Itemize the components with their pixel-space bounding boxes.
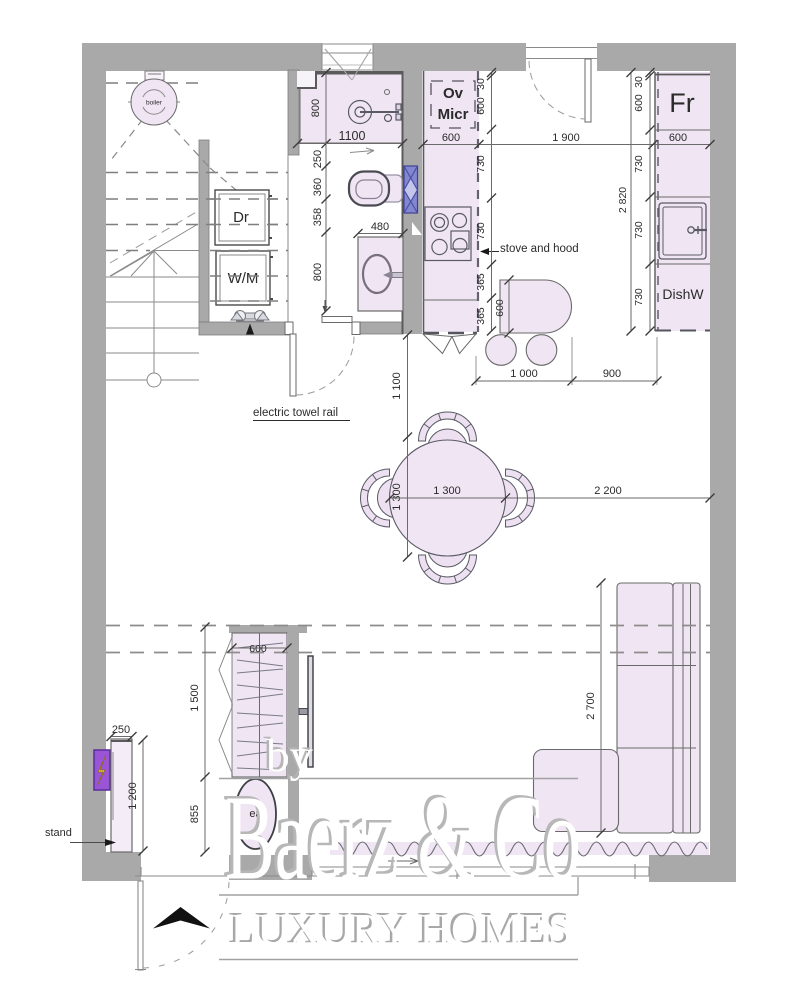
svg-text:365: 365 — [475, 273, 487, 291]
svg-text:DishW: DishW — [662, 286, 704, 302]
svg-text:600: 600 — [494, 299, 506, 317]
svg-text:1 100: 1 100 — [391, 372, 403, 400]
svg-text:electric towel rail: electric towel rail — [253, 407, 338, 419]
svg-text:358: 358 — [312, 208, 324, 226]
svg-text:2 200: 2 200 — [594, 485, 622, 497]
svg-text:600: 600 — [442, 132, 460, 144]
svg-text:1 000: 1 000 — [510, 368, 538, 380]
svg-text:730: 730 — [633, 288, 645, 306]
svg-text:1100: 1100 — [339, 129, 366, 143]
svg-text:600: 600 — [633, 94, 645, 112]
svg-text:730: 730 — [475, 155, 487, 173]
svg-text:365: 365 — [475, 307, 487, 325]
svg-text:30: 30 — [475, 78, 487, 90]
svg-text:800: 800 — [310, 99, 322, 117]
svg-text:1 500: 1 500 — [189, 684, 201, 712]
svg-text:855: 855 — [189, 805, 201, 823]
svg-text:600: 600 — [249, 643, 267, 655]
svg-text:2 820: 2 820 — [617, 187, 629, 213]
svg-text:730: 730 — [633, 221, 645, 239]
svg-text:360: 360 — [312, 178, 324, 196]
svg-text:1 300: 1 300 — [391, 483, 403, 511]
svg-text:1 300: 1 300 — [433, 485, 461, 497]
svg-text:stand: stand — [45, 827, 72, 839]
svg-text:stove and hood: stove and hood — [500, 243, 579, 255]
svg-text:600: 600 — [669, 132, 687, 144]
svg-text:Fr: Fr — [669, 88, 694, 118]
svg-text:600: 600 — [475, 97, 487, 115]
svg-text:730: 730 — [475, 222, 487, 240]
svg-text:1 200: 1 200 — [127, 782, 139, 810]
svg-text:730: 730 — [633, 155, 645, 173]
svg-text:250: 250 — [112, 724, 130, 736]
svg-text:480: 480 — [371, 221, 389, 233]
svg-text:Ov: Ov — [443, 85, 464, 102]
svg-text:LUXURY HOMES: LUXURY HOMES — [231, 905, 573, 954]
svg-text:Baerz & Co: Baerz & Co — [225, 771, 581, 906]
svg-text:30: 30 — [633, 76, 645, 88]
svg-text:1 900: 1 900 — [552, 132, 580, 144]
svg-text:2 700: 2 700 — [585, 692, 597, 720]
svg-text:Dr: Dr — [233, 209, 249, 226]
svg-text:800: 800 — [312, 263, 324, 281]
svg-text:250: 250 — [312, 150, 324, 168]
svg-text:Micr: Micr — [438, 106, 469, 123]
svg-text:boiler: boiler — [146, 100, 163, 107]
svg-text:900: 900 — [603, 368, 621, 380]
svg-text:W/M: W/M — [228, 270, 259, 287]
